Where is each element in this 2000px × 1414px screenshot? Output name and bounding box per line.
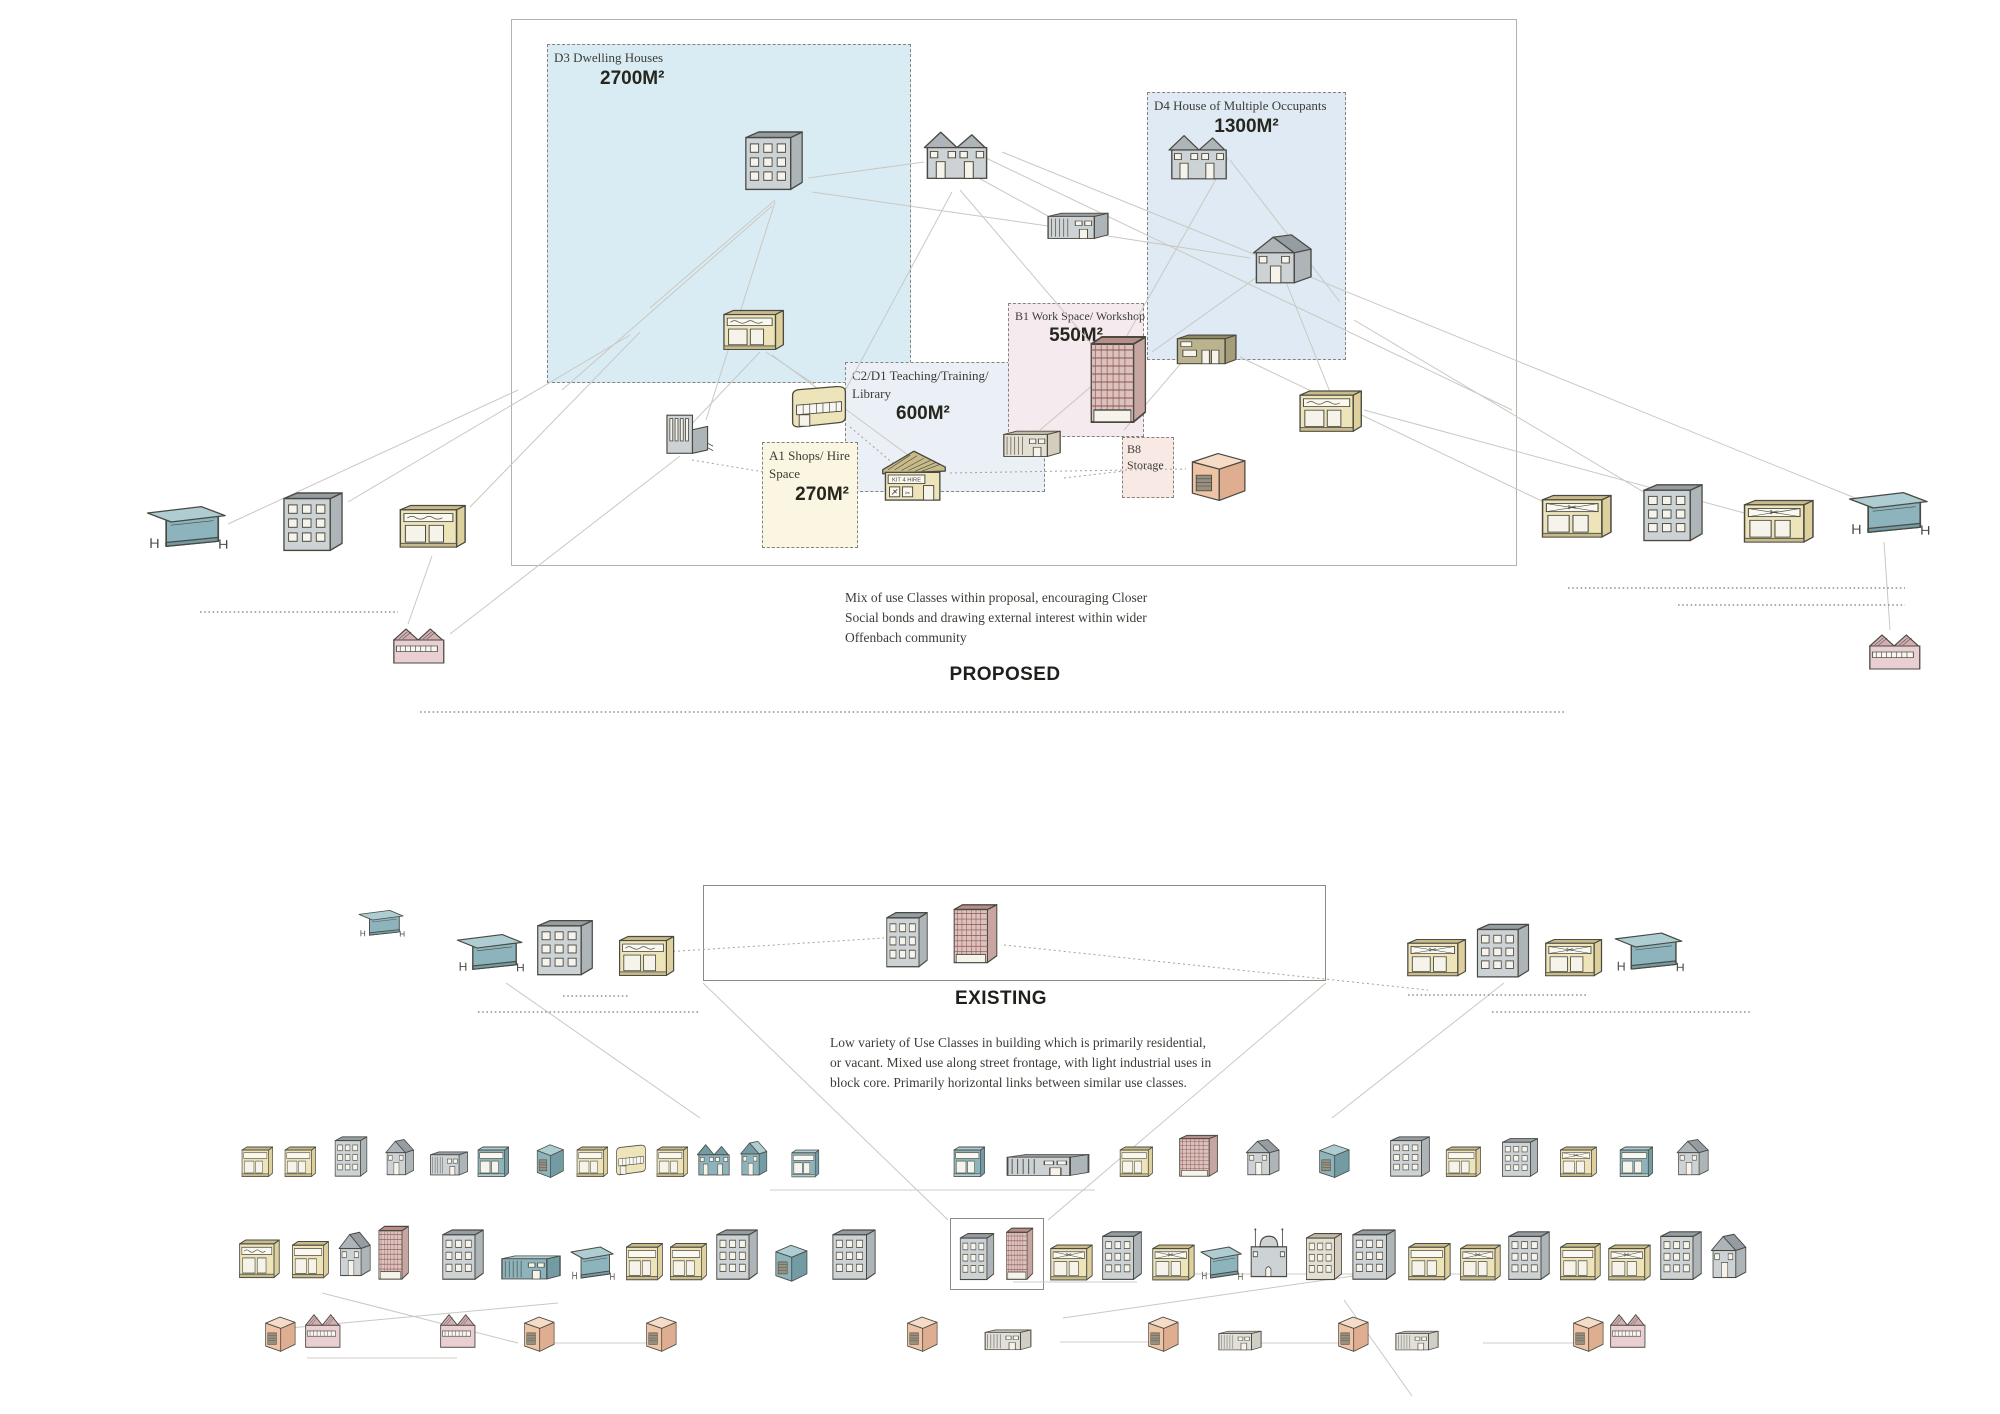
building-house xyxy=(738,1138,770,1180)
building-kithire: KIT 4 HIRE✂ xyxy=(880,442,948,508)
building-house xyxy=(1708,1230,1750,1284)
building-apartment xyxy=(714,1224,760,1284)
building-apartment xyxy=(1350,1224,1398,1284)
building-cafe xyxy=(1614,918,1686,976)
building-semi xyxy=(920,122,994,186)
building-shop xyxy=(1406,1230,1452,1284)
building-shed xyxy=(1570,1310,1606,1354)
building-house xyxy=(383,1136,417,1180)
building-barbershop: ✂ xyxy=(1048,1232,1094,1284)
diagram-canvas: D3 Dwelling Houses 2700M² D4 House of Mu… xyxy=(0,0,2000,1414)
svg-text:✂: ✂ xyxy=(1475,1250,1481,1260)
building-barbershop: ✂ xyxy=(1458,1232,1502,1284)
building-apartment xyxy=(333,1132,369,1180)
building-workshop xyxy=(1172,320,1240,372)
svg-text:✂: ✂ xyxy=(1573,1152,1578,1159)
building-semi xyxy=(1165,126,1233,186)
svg-text:✂: ✂ xyxy=(905,491,910,497)
building-apartment xyxy=(830,1224,878,1284)
building-towergrid xyxy=(1086,330,1152,430)
building-towergrid xyxy=(950,900,1002,968)
building-bakery xyxy=(396,490,468,552)
svg-text:✂: ✂ xyxy=(1429,945,1438,954)
building-house xyxy=(1674,1136,1712,1180)
building-shed xyxy=(521,1310,557,1354)
building-apartment xyxy=(440,1224,486,1284)
building-bakery xyxy=(616,922,676,980)
building-towergrid xyxy=(376,1222,412,1284)
building-barbershop: ✂ xyxy=(1150,1232,1196,1284)
building-apartment xyxy=(1640,478,1706,546)
building-shop xyxy=(1618,1136,1654,1180)
building-shop xyxy=(1444,1136,1482,1180)
building-semi xyxy=(695,1138,733,1180)
building-shed xyxy=(1316,1138,1352,1180)
building-industrial xyxy=(982,1318,1034,1354)
proposed-note: Mix of use Classes within proposal, enco… xyxy=(845,588,1157,648)
building-shed xyxy=(1145,1310,1181,1354)
building-barbershop: ✂ xyxy=(1606,1232,1652,1284)
svg-text:✂: ✂ xyxy=(1769,508,1779,518)
building-shop xyxy=(668,1230,708,1284)
building-apartment xyxy=(1500,1134,1540,1180)
building-shop xyxy=(1558,1230,1602,1284)
building-shed xyxy=(904,1310,940,1354)
building-apartment xyxy=(1100,1226,1144,1284)
building-barbershop: ✂ xyxy=(1404,926,1468,980)
building-apartment xyxy=(1388,1132,1432,1180)
building-bakery xyxy=(1296,376,1364,436)
building-apartment xyxy=(1304,1228,1344,1284)
building-factory xyxy=(1608,1306,1652,1354)
building-church xyxy=(660,404,718,460)
building-shop xyxy=(624,1230,664,1284)
building-industrial xyxy=(1216,1320,1264,1354)
building-towergrid xyxy=(1176,1132,1222,1180)
building-shop xyxy=(290,1228,330,1282)
building-house xyxy=(1248,230,1318,290)
building-cafe xyxy=(570,1234,616,1284)
building-shed xyxy=(534,1138,566,1180)
existing-note: Low variety of Use Classes in building w… xyxy=(830,1033,1212,1093)
building-shed xyxy=(262,1310,298,1354)
building-barbershop: ✂ xyxy=(1740,485,1816,547)
building-shed xyxy=(772,1238,810,1284)
building-house xyxy=(336,1228,374,1282)
building-industrial xyxy=(1000,416,1064,462)
building-shed xyxy=(1186,444,1250,504)
building-shop xyxy=(283,1136,317,1180)
building-barbershop: ✂ xyxy=(1542,926,1604,980)
building-shop xyxy=(952,1136,986,1180)
svg-text:KIT 4 HIRE: KIT 4 HIRE xyxy=(892,478,921,484)
building-shop xyxy=(575,1136,609,1180)
building-factory xyxy=(1866,626,1930,676)
building-cafe xyxy=(358,900,406,940)
building-cafe xyxy=(456,920,526,976)
building-industrial xyxy=(498,1242,564,1284)
connector-lines xyxy=(0,0,2000,1414)
building-apartment xyxy=(884,906,930,972)
existing-title: EXISTING xyxy=(891,988,1111,1010)
building-barbershop: ✂ xyxy=(1558,1136,1598,1180)
building-cafe xyxy=(1200,1234,1244,1284)
building-bakery xyxy=(237,1226,281,1282)
building-industrial xyxy=(1393,1320,1441,1354)
svg-text:✂: ✂ xyxy=(1624,1250,1630,1260)
building-barbershop: ✂ xyxy=(1538,480,1614,542)
building-bakery xyxy=(720,296,786,354)
building-shop xyxy=(240,1136,274,1180)
svg-text:✂: ✂ xyxy=(1566,945,1575,954)
svg-text:✂: ✂ xyxy=(1567,503,1577,513)
building-industrial xyxy=(428,1138,470,1180)
building-apartment xyxy=(534,914,596,980)
building-curved xyxy=(613,1136,649,1180)
building-apartment xyxy=(742,125,806,195)
building-shop xyxy=(1118,1136,1154,1180)
building-shed xyxy=(643,1310,679,1354)
building-factory xyxy=(303,1306,347,1354)
building-apartment xyxy=(1474,918,1532,982)
building-factory xyxy=(438,1306,482,1354)
building-apartment xyxy=(280,486,346,556)
svg-text:✂: ✂ xyxy=(1066,1250,1072,1260)
svg-text:✂: ✂ xyxy=(1168,1250,1174,1260)
building-cafe xyxy=(146,490,230,554)
building-apartment xyxy=(958,1228,996,1284)
building-factory xyxy=(390,620,454,670)
building-house xyxy=(1243,1136,1283,1180)
building-curved xyxy=(786,374,852,434)
building-shop xyxy=(476,1136,510,1180)
building-shop xyxy=(655,1136,689,1180)
building-towergrid xyxy=(1004,1224,1036,1284)
building-mosque xyxy=(1246,1222,1298,1284)
building-industrial xyxy=(1044,198,1112,244)
building-apartment xyxy=(1506,1226,1552,1284)
proposed-title: PROPOSED xyxy=(895,664,1115,686)
building-apartment xyxy=(1658,1226,1704,1284)
building-shop xyxy=(790,1140,820,1180)
building-industrial xyxy=(1002,1142,1094,1180)
building-cafe xyxy=(1848,476,1932,540)
building-shed xyxy=(1335,1310,1371,1354)
